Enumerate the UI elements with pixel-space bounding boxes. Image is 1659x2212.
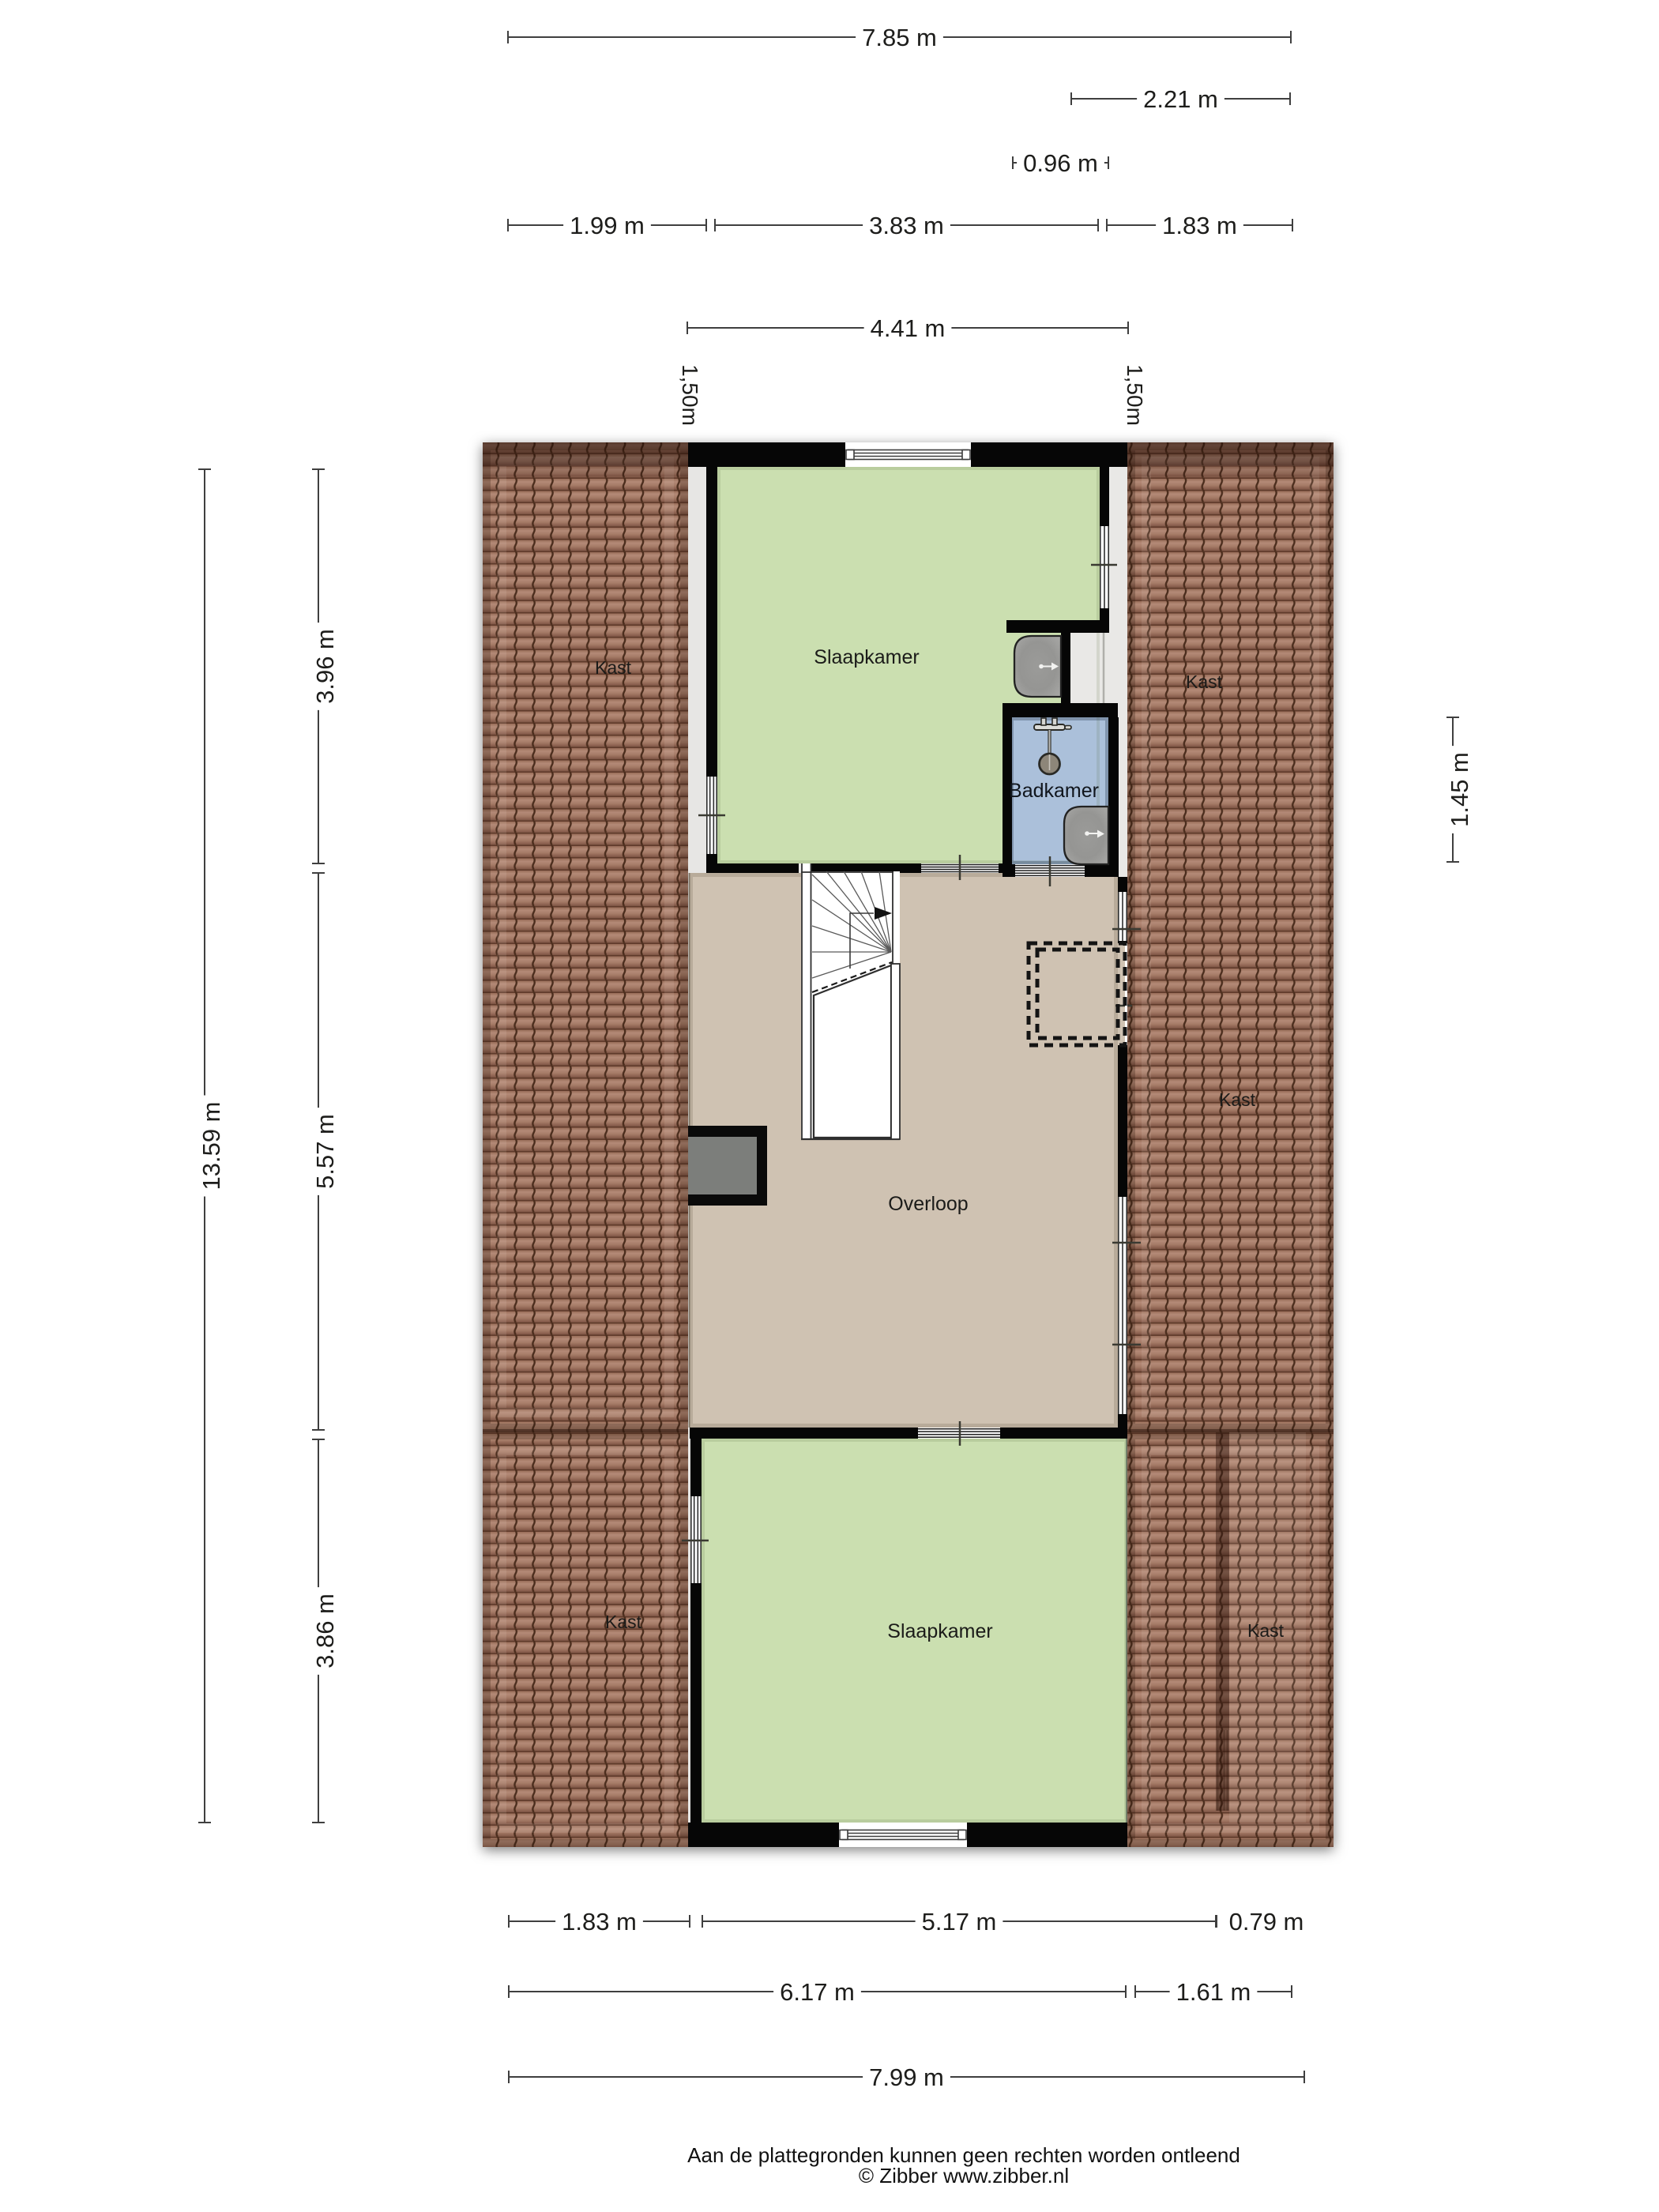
svg-text:1.99 m: 1.99 m	[570, 212, 645, 239]
svg-text:1.45 m: 1.45 m	[1446, 752, 1473, 827]
svg-text:13.59 m: 13.59 m	[197, 1101, 225, 1190]
svg-text:Slaapkamer: Slaapkamer	[814, 646, 919, 668]
svg-text:7.85 m: 7.85 m	[862, 24, 937, 51]
svg-text:5.17 m: 5.17 m	[922, 1908, 997, 1935]
svg-text:Badkamer: Badkamer	[1009, 780, 1099, 802]
svg-text:1,50m: 1,50m	[678, 364, 702, 426]
svg-text:3.86 m: 3.86 m	[311, 1593, 339, 1668]
svg-text:© Zibber www.zibber.nl: © Zibber www.zibber.nl	[859, 2164, 1069, 2188]
svg-text:7.99 m: 7.99 m	[869, 2063, 944, 2091]
svg-text:Overloop: Overloop	[888, 1193, 968, 1215]
svg-text:Kast: Kast	[605, 1612, 642, 1632]
svg-text:4.41 m: 4.41 m	[871, 314, 946, 342]
svg-text:1.61 m: 1.61 m	[1176, 1978, 1251, 2006]
svg-text:1.83 m: 1.83 m	[1162, 212, 1237, 239]
svg-text:6.17 m: 6.17 m	[780, 1978, 855, 2006]
svg-text:3.96 m: 3.96 m	[311, 629, 339, 704]
svg-text:Kast: Kast	[595, 657, 632, 678]
svg-text:0.79 m: 0.79 m	[1229, 1908, 1304, 1935]
svg-text:5.57 m: 5.57 m	[311, 1114, 339, 1189]
svg-text:0.96 m: 0.96 m	[1023, 149, 1098, 177]
svg-text:Slaapkamer: Slaapkamer	[887, 1620, 992, 1642]
svg-text:Kast: Kast	[1186, 671, 1223, 692]
svg-text:2.21 m: 2.21 m	[1143, 85, 1218, 113]
svg-text:1.83 m: 1.83 m	[562, 1908, 637, 1935]
svg-text:Kast: Kast	[1219, 1089, 1256, 1110]
svg-text:Kast: Kast	[1247, 1620, 1285, 1641]
svg-text:3.83 m: 3.83 m	[869, 212, 944, 239]
svg-text:1,50m: 1,50m	[1123, 364, 1147, 426]
